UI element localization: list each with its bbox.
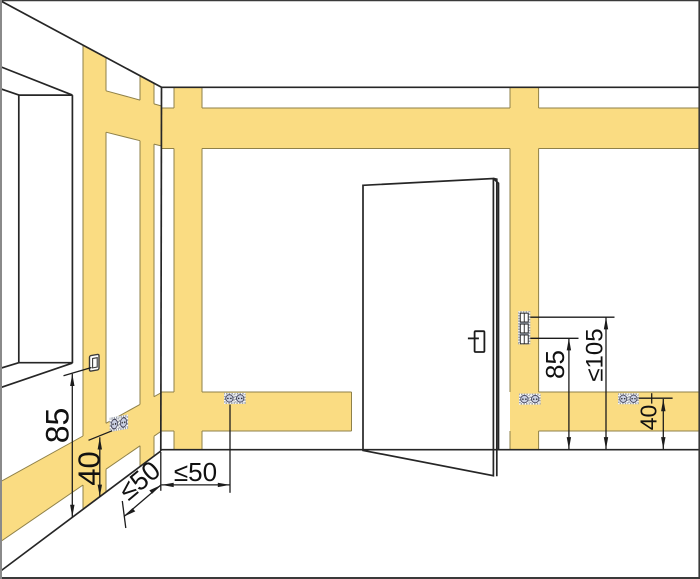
svg-text:≤50: ≤50 [174,457,217,487]
svg-text:85: 85 [540,350,570,379]
svg-text:≤105: ≤105 [582,328,609,381]
svg-text:40: 40 [636,405,662,431]
svg-text:85: 85 [40,408,76,444]
svg-text:40: 40 [72,451,107,485]
